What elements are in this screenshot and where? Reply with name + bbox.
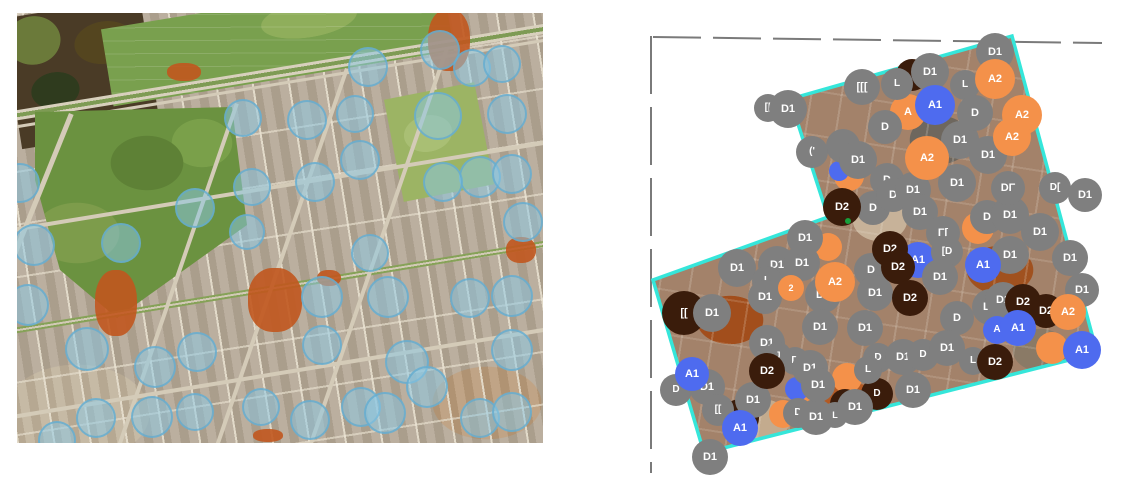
plot-marker-label: D1 (950, 178, 964, 189)
plot-marker-label: A2 (1061, 307, 1075, 318)
plot-marker-label: A1 (976, 260, 990, 271)
plot-marker-label: L (970, 356, 976, 366)
plot-marker-label: D1 (923, 67, 937, 78)
plot-marker-label: D1 (795, 258, 809, 269)
plot-marker-D1: D1 (1068, 178, 1102, 212)
plot-marker-label: D (869, 203, 877, 214)
plot-marker-D1: DΓ (991, 171, 1025, 205)
plot-marker-label: D1 (868, 288, 882, 299)
plot-marker-D1: D1 (692, 439, 728, 475)
plot-marker-A1: A1 (722, 410, 758, 446)
plot-marker-label: [[ (680, 308, 687, 319)
plot-marker-A2: A2 (993, 118, 1031, 156)
figure-two-panel-maps: A[[A1L[DD[[D1[[[LD1D1LD('D1D1DD1DDDD1D1D… (0, 0, 1123, 501)
plot-marker-label: D1 (933, 272, 947, 283)
plot-marker-label: D[ (1050, 183, 1061, 193)
sample-plot-circle (302, 325, 342, 365)
plot-marker-D1: D1 (895, 372, 931, 408)
plot-marker-label: A2 (920, 153, 934, 164)
plot-marker-label: A1 (928, 100, 942, 111)
plot-marker-label: D1 (913, 207, 927, 218)
plot-marker-label: D2 (835, 202, 849, 213)
bare-soil-patch (167, 63, 201, 81)
plot-marker-label: A1 (685, 369, 699, 380)
plot-marker-D1: D (868, 110, 902, 144)
sample-plot-circle (38, 421, 76, 443)
green-dot-marker (845, 218, 851, 224)
plot-marker-A2: A2 (975, 59, 1015, 99)
plot-marker-label: D (919, 350, 926, 360)
plot-marker-label: A1 (1075, 345, 1089, 356)
plot-marker-label: D1 (981, 150, 995, 161)
plot-marker-label: D1 (809, 412, 823, 423)
plot-marker-D2: D2 (892, 280, 928, 316)
plot-marker-label: 2 (788, 284, 793, 293)
plot-marker-label: D1 (703, 452, 717, 463)
plot-marker-label: L (865, 365, 871, 375)
plot-marker-label: A2 (1005, 132, 1019, 143)
sample-plot-circle (101, 223, 141, 263)
plot-marker-label: D (881, 122, 889, 133)
plot-marker-label: DΓ (1001, 183, 1016, 194)
sample-plot-circle (287, 100, 327, 140)
sample-plot-circle (364, 392, 406, 434)
plot-marker-D2: D2 (977, 344, 1013, 380)
plot-marker-D1: D1 (802, 309, 838, 345)
plot-marker-D1: D1 (1052, 240, 1088, 276)
plot-marker-label: D1 (798, 233, 812, 244)
sample-plot-circle (491, 329, 533, 371)
plot-marker-D1: D1 (801, 368, 835, 402)
sample-plot-circle (483, 45, 521, 83)
plot-marker-label: D (873, 389, 880, 399)
sample-plot-circle (76, 398, 116, 438)
plot-marker-label: [[ (715, 405, 722, 415)
plot-marker-label: D1 (1075, 285, 1089, 296)
plot-marker-D1: D1 (748, 280, 782, 314)
sample-plot-circle (224, 99, 262, 137)
plot-marker-label: D1 (705, 308, 719, 319)
sample-plot-circle (290, 400, 330, 440)
plot-marker-label: D2 (903, 293, 917, 304)
plot-marker-label: D (953, 313, 961, 324)
plot-marker-label: D (971, 108, 979, 119)
plot-marker-label: (' (809, 147, 815, 157)
sample-plot-circle (301, 276, 343, 318)
plot-marker-A2: 2 (778, 275, 804, 301)
sample-plot-circle (503, 202, 543, 242)
sample-plot-circle (348, 47, 388, 87)
plot-marker-D1: D1 (693, 294, 731, 332)
plot-marker-label: D1 (730, 263, 744, 274)
plot-marker-label: A (904, 107, 912, 118)
sample-plot-circle (17, 224, 55, 266)
bare-soil-patch (95, 270, 137, 336)
bare-soil-patch (248, 268, 302, 332)
plot-marker-label: D1 (746, 395, 760, 406)
dashed-frame-top (653, 37, 1102, 43)
sample-plot-circle (336, 95, 374, 133)
sample-plot-circle (295, 162, 335, 202)
plot-marker-label: D1 (940, 343, 954, 354)
plot-marker-label: L (962, 80, 968, 90)
sample-plot-circle (450, 278, 490, 318)
sample-plot-circle (229, 214, 265, 250)
plot-marker-A2: A2 (905, 136, 949, 180)
sample-plot-circle (491, 275, 533, 317)
plot-marker-label: D1 (1078, 190, 1092, 201)
sample-plot-circle (176, 393, 214, 431)
sample-plot-circle (406, 366, 448, 408)
plot-marker-D2: D2 (749, 353, 785, 389)
plot-marker-label: D2 (760, 366, 774, 377)
plot-marker-D1: D1 (847, 310, 883, 346)
plot-marker-label: D2 (891, 262, 905, 273)
plot-marker-D2: D2 (881, 250, 915, 284)
plot-marker-A1: A1 (1000, 310, 1036, 346)
plot-marker-D1: D1 (837, 389, 873, 425)
plot-marker-A2: A2 (1050, 294, 1086, 330)
bare-soil-patch (253, 429, 283, 442)
plot-marker-D1: D1 (769, 90, 807, 128)
plot-marker-label: D2 (1016, 297, 1030, 308)
plot-marker-A1: A1 (915, 85, 955, 125)
plot-marker-D1: L (881, 68, 913, 100)
plot-marker-label: D1 (858, 323, 872, 334)
sample-plot-circle (492, 154, 532, 194)
plot-marker-D2: D2 (823, 188, 861, 226)
plot-marker-label: D1 (1033, 227, 1047, 238)
sample-plot-circle (492, 392, 532, 432)
plot-marker-label: D1 (988, 47, 1002, 58)
sample-plot-circle (134, 346, 176, 388)
plot-marker-label: L (894, 79, 900, 89)
plot-marker-label: D1 (781, 104, 795, 115)
plot-marker-D1: D1 (922, 259, 958, 295)
plot-marker-label: D1 (906, 385, 920, 396)
plot-marker-D1: [[[ (844, 69, 880, 105)
plot-marker-label: D1 (848, 402, 862, 413)
plot-marker-A2: A2 (815, 262, 855, 302)
plot-marker-D1: D[ (1039, 172, 1071, 204)
plot-marker-label: D1 (851, 155, 865, 166)
plot-marker-A1: A1 (965, 247, 1001, 283)
plot-marker-label: A1 (733, 423, 747, 434)
plot-marker-label: A2 (988, 74, 1002, 85)
sample-plot-circle (175, 188, 215, 228)
plot-marker-label: [[[ (857, 82, 868, 93)
sample-plot-circle (242, 388, 280, 426)
plot-marker-label: D1 (1003, 250, 1017, 261)
plot-marker-A1: A1 (1063, 331, 1101, 369)
sample-plot-circle (233, 168, 271, 206)
plot-marker-label: D2 (988, 357, 1002, 368)
sample-plot-circle (340, 140, 380, 180)
left-satellite-map (17, 13, 543, 443)
sample-plot-circle (367, 276, 409, 318)
sample-plot-circle (177, 332, 217, 372)
plot-marker-label: A2 (828, 277, 842, 288)
sample-plot-circle (414, 92, 462, 140)
sample-plot-circle (423, 162, 463, 202)
sample-plot-circle (351, 234, 389, 272)
sample-plot-circle (131, 396, 173, 438)
plot-marker-A1: A1 (675, 357, 709, 391)
plot-marker-D1: L (854, 356, 882, 384)
sample-plot-circle (487, 94, 527, 134)
sample-plot-circle (65, 327, 109, 371)
plot-marker-label: D1 (1063, 253, 1077, 264)
plot-marker-label: D1 (1003, 210, 1017, 221)
plot-marker-label: A1 (1011, 323, 1025, 334)
plot-marker-D1: D1 (718, 249, 756, 287)
plot-marker-label: [D (942, 247, 953, 257)
plot-marker-D1: D (957, 95, 993, 131)
plot-marker-label: D (867, 265, 875, 276)
plot-marker-label: D (983, 212, 991, 223)
plot-marker-D1: (' (796, 136, 828, 168)
plot-marker-label: D1 (953, 135, 967, 146)
plot-marker-label: D1 (813, 322, 827, 333)
plot-marker-label: D1 (758, 292, 772, 303)
plot-marker-D1: D1 (787, 220, 823, 256)
sample-plot-circle (17, 284, 49, 326)
plot-marker-label: D (672, 385, 679, 395)
plot-marker-label: D1 (811, 380, 825, 391)
